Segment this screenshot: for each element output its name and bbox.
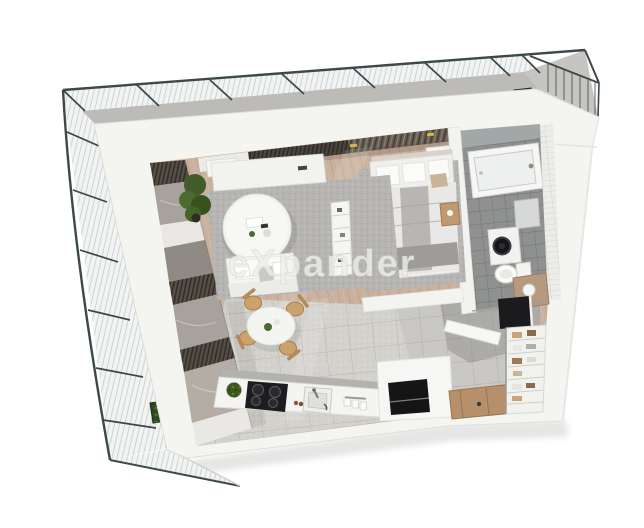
wall-niche bbox=[498, 296, 532, 329]
floor-plan-render: eXpander bbox=[0, 0, 644, 528]
coffee-table-book bbox=[246, 217, 263, 228]
wardrobe bbox=[506, 325, 546, 414]
spice-jar bbox=[294, 401, 298, 405]
bathtub bbox=[468, 143, 543, 198]
kitchen-sink bbox=[303, 387, 332, 414]
cabinet-block bbox=[377, 356, 453, 421]
spice-jar bbox=[299, 402, 303, 406]
mirror-cabinet bbox=[514, 198, 540, 229]
bedside-stool bbox=[440, 202, 460, 226]
door-handle bbox=[477, 402, 481, 406]
induction-hob bbox=[245, 381, 288, 412]
kitchen-plant bbox=[227, 383, 242, 398]
dining-table bbox=[247, 307, 295, 345]
cabinet-niche bbox=[388, 379, 430, 415]
watermark: eXpander bbox=[227, 243, 416, 285]
washing-machine bbox=[488, 227, 521, 265]
accent-pillow bbox=[430, 173, 448, 188]
